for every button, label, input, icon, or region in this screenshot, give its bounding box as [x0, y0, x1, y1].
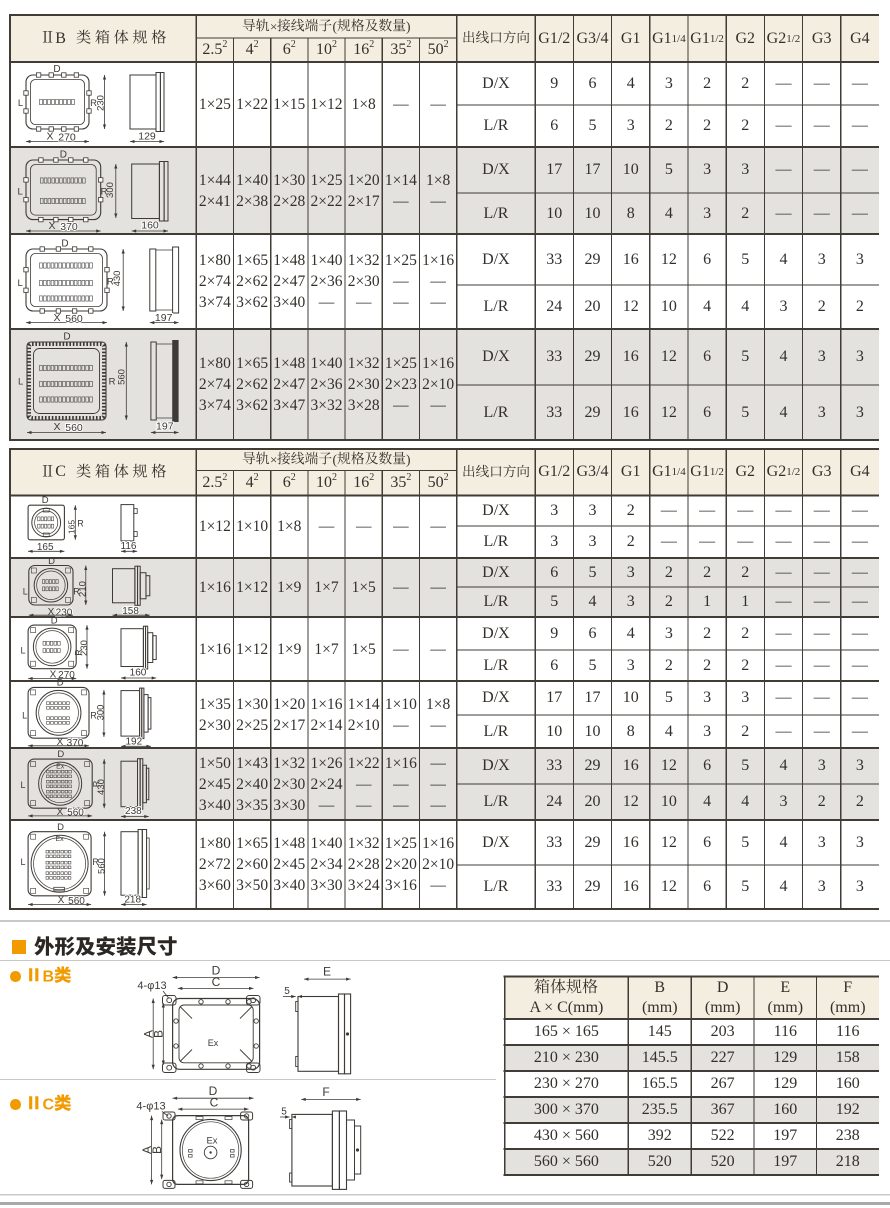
svg-text:L: L [18, 377, 23, 388]
svg-text:160: 160 [130, 667, 147, 678]
svg-text:560: 560 [65, 422, 83, 434]
svg-text:560: 560 [116, 369, 127, 385]
svg-text:L: L [20, 780, 25, 790]
svg-text:129: 129 [138, 131, 156, 143]
svg-text:Ex: Ex [56, 836, 65, 843]
svg-text:X: X [53, 421, 60, 433]
svg-text:430: 430 [112, 271, 123, 287]
svg-text:238: 238 [125, 806, 142, 817]
svg-text:C: C [212, 975, 221, 989]
svg-text:X: X [46, 131, 53, 143]
svg-text:230: 230 [79, 640, 90, 656]
svg-text:197: 197 [156, 421, 174, 433]
svg-text:C: C [210, 1096, 219, 1110]
svg-text:L: L [18, 278, 23, 289]
svg-text:R: R [109, 377, 116, 388]
svg-text:D: D [61, 239, 68, 250]
svg-text:430: 430 [96, 779, 107, 795]
svg-text:4-φ13: 4-φ13 [136, 1101, 165, 1113]
svg-text:560: 560 [68, 896, 85, 907]
svg-text:Ex: Ex [56, 764, 65, 771]
svg-text:560: 560 [65, 313, 83, 325]
svg-text:D: D [57, 822, 64, 833]
svg-text:B: B [150, 1146, 164, 1154]
svg-text:5: 5 [284, 986, 290, 997]
svg-text:Ex: Ex [206, 1136, 217, 1147]
svg-text:X: X [53, 312, 60, 324]
svg-text:X: X [48, 220, 55, 232]
svg-text:L: L [22, 711, 27, 721]
svg-text:L: L [18, 187, 23, 198]
svg-text:X: X [57, 737, 64, 748]
svg-text:D: D [53, 64, 60, 75]
svg-text:116: 116 [121, 541, 137, 552]
svg-text:270: 270 [58, 132, 76, 144]
svg-text:B: B [152, 1030, 166, 1038]
svg-text:218: 218 [124, 895, 141, 906]
svg-text:4-φ13: 4-φ13 [137, 980, 166, 992]
svg-text:R: R [77, 519, 84, 529]
svg-text:230: 230 [96, 95, 107, 111]
svg-text:E: E [323, 965, 331, 979]
svg-text:L: L [23, 587, 28, 597]
svg-text:L: L [20, 857, 25, 867]
svg-text:D: D [48, 556, 55, 567]
svg-text:D: D [57, 678, 64, 689]
svg-text:197: 197 [155, 312, 173, 324]
svg-text:210: 210 [78, 581, 89, 597]
svg-text:300: 300 [95, 705, 106, 721]
svg-text:D: D [51, 616, 58, 627]
svg-text:370: 370 [60, 221, 78, 233]
svg-text:Ex: Ex [208, 1038, 219, 1048]
svg-text:192: 192 [125, 736, 142, 747]
svg-text:560: 560 [67, 808, 84, 819]
svg-text:300: 300 [105, 182, 116, 198]
svg-text:230: 230 [56, 608, 73, 619]
svg-text:370: 370 [67, 738, 84, 749]
svg-text:L: L [20, 646, 25, 656]
svg-text:L: L [18, 98, 23, 109]
svg-text:D: D [42, 495, 49, 506]
svg-text:F: F [322, 1085, 329, 1099]
svg-text:560: 560 [96, 858, 107, 874]
svg-text:D: D [60, 150, 67, 161]
svg-text:D: D [57, 749, 64, 760]
svg-text:D: D [63, 332, 70, 343]
svg-text:160: 160 [141, 220, 159, 232]
